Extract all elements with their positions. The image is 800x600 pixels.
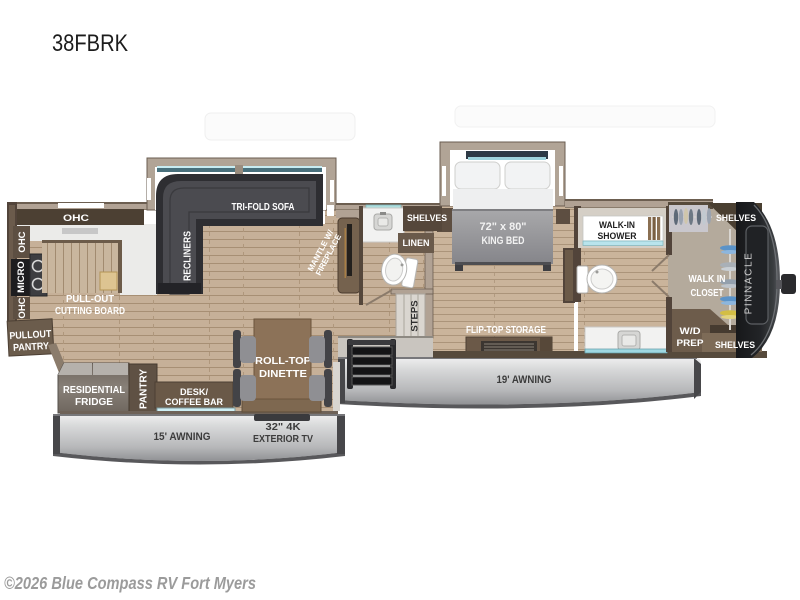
svg-text:DINETTE: DINETTE [259,368,307,380]
svg-text:19' AWNING: 19' AWNING [497,374,552,386]
svg-text:SHOWER: SHOWER [598,231,637,241]
svg-text:©2026 Blue Compass RV Fort Mye: ©2026 Blue Compass RV Fort Myers [4,573,256,593]
svg-text:PULLOUT: PULLOUT [9,329,52,342]
svg-text:72" x 80": 72" x 80" [480,221,527,233]
svg-text:KING BED: KING BED [482,235,525,247]
svg-text:PULL-OUT: PULL-OUT [66,294,114,305]
svg-text:RESIDENTIAL: RESIDENTIAL [63,385,125,396]
svg-text:PREP: PREP [677,338,705,349]
svg-text:PANTRY: PANTRY [139,369,150,409]
svg-text:32" 4K: 32" 4K [266,421,301,433]
svg-text:SHELVES: SHELVES [715,340,755,351]
svg-text:TRI-FOLD SOFA: TRI-FOLD SOFA [232,201,295,213]
svg-text:MICRO: MICRO [16,261,27,293]
svg-text:WALK-IN: WALK-IN [599,220,635,230]
svg-text:RECLINERS: RECLINERS [183,231,194,281]
svg-text:OHC: OHC [17,297,28,318]
svg-text:SHELVES: SHELVES [407,213,447,224]
svg-text:STEPS: STEPS [410,300,421,331]
svg-text:PINNACLE: PINNACLE [744,252,755,315]
svg-text:LINEN: LINEN [403,238,430,248]
svg-text:COFFEE BAR: COFFEE BAR [165,397,223,408]
svg-text:CLOSET: CLOSET [691,287,724,299]
svg-text:EXTERIOR TV: EXTERIOR TV [253,433,313,445]
svg-text:ROLL-TOP: ROLL-TOP [255,355,311,367]
svg-text:38FBRK: 38FBRK [52,30,128,57]
svg-text:CUTTING BOARD: CUTTING BOARD [55,306,125,317]
svg-text:OHC: OHC [17,231,28,252]
svg-text:15' AWNING: 15' AWNING [154,431,211,443]
svg-text:PANTRY: PANTRY [13,341,50,354]
svg-text:WALK IN: WALK IN [689,273,726,285]
svg-text:OHC: OHC [63,213,89,224]
svg-text:FRIDGE: FRIDGE [75,397,113,408]
svg-text:SHELVES: SHELVES [716,213,756,224]
svg-text:FLIP-TOP STORAGE: FLIP-TOP STORAGE [466,324,546,336]
svg-text:W/D: W/D [680,326,701,337]
